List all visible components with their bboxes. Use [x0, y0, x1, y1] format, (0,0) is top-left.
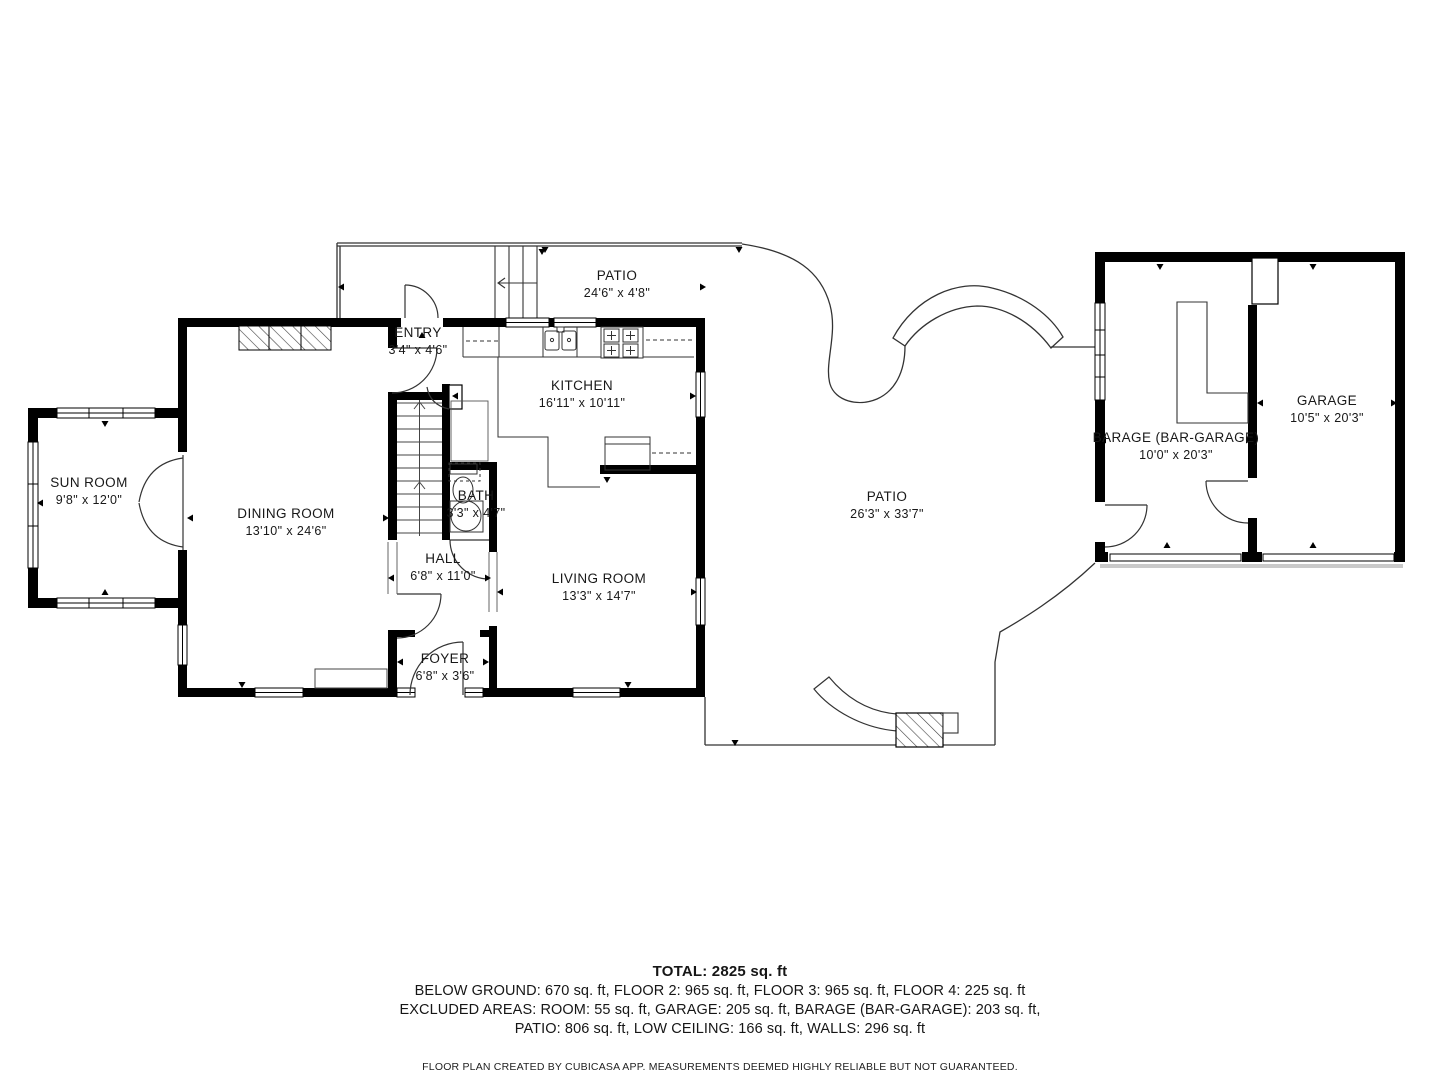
top-patio-outline	[337, 243, 742, 318]
chimney-hatch	[239, 326, 331, 350]
driveway-edge	[1100, 564, 1403, 568]
top-patio-stairs	[495, 246, 537, 318]
cased-openings	[388, 542, 497, 612]
bath-door	[450, 540, 489, 579]
area-summary: TOTAL: 2825 sq. ft BELOW GROUND: 670 sq.…	[0, 963, 1440, 1073]
main-patio-outline	[705, 244, 1095, 745]
bath-sink	[451, 501, 481, 531]
kitchen-fixtures	[463, 327, 694, 487]
kitchen-sink	[545, 327, 576, 350]
sunroom-french-doors	[139, 455, 183, 550]
entry-patio-door	[405, 285, 438, 318]
cubicasa-disclaimer: FLOOR PLAN CREATED BY CUBICASA APP. MEAS…	[0, 1061, 1440, 1073]
front-door	[410, 642, 463, 695]
bath-fixtures	[449, 463, 483, 532]
stair-closet	[451, 401, 488, 461]
excluded-areas-line-1: EXCLUDED AREAS: ROOM: 55 sq. ft, GARAGE:…	[0, 1002, 1440, 1018]
patio-fireplace	[896, 713, 958, 747]
main-staircase	[397, 400, 442, 536]
stove	[601, 327, 643, 358]
bench	[315, 669, 387, 688]
entry-dining-door	[392, 348, 437, 393]
barage-side-door	[1105, 505, 1147, 547]
total-area: TOTAL: 2825 sq. ft	[0, 963, 1440, 980]
windows	[28, 303, 1105, 697]
floors-area-line: BELOW GROUND: 670 sq. ft, FLOOR 2: 965 s…	[0, 983, 1440, 999]
floor-plan-drawing	[0, 0, 1440, 1080]
curved-garden-wall	[893, 286, 1063, 348]
garage-divider-door-leaf	[1252, 258, 1278, 304]
bar-counter	[1177, 302, 1248, 423]
patio-bench-curve	[814, 677, 897, 731]
barage-garage-door	[1206, 481, 1248, 523]
dining-features	[239, 326, 387, 688]
floor-plan-page: PATIO 24'6" x 4'8" SUN ROOM 9'8" x 12'0"…	[0, 0, 1440, 1080]
kitchen-floor-boundary	[498, 357, 600, 487]
excluded-areas-line-2: PATIO: 806 sq. ft, LOW CEILING: 166 sq. …	[0, 1021, 1440, 1037]
